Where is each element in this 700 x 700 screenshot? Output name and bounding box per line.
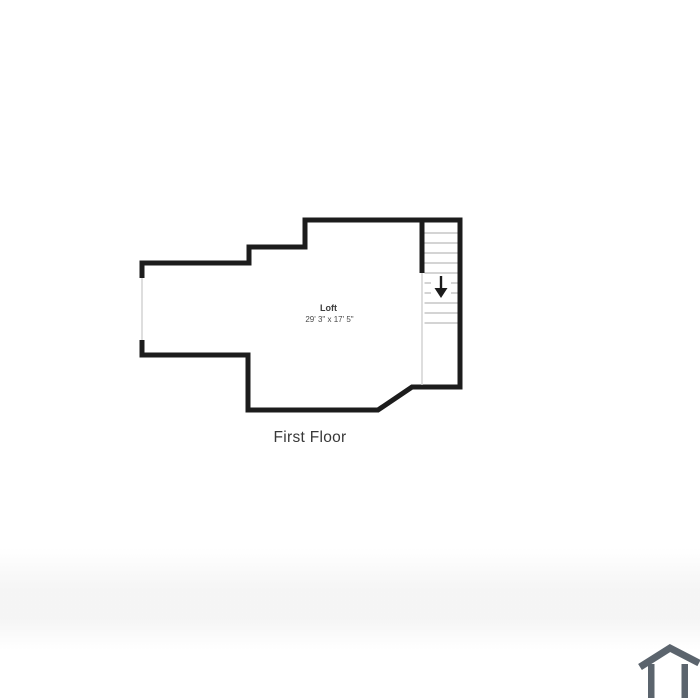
stairs-down-arrow-icon [431, 274, 451, 300]
left-window [138, 278, 147, 340]
house-icon [640, 648, 699, 698]
staircase [422, 218, 458, 385]
floorplan-svg: Loft 29' 3" x 17' 5" First Floor [0, 0, 700, 700]
room-dimensions: 29' 3" x 17' 5" [305, 315, 353, 324]
room-label: Loft [320, 303, 337, 313]
floorplan-outline [142, 220, 460, 410]
floor-label: First Floor [273, 429, 346, 446]
floorplan-image: Loft 29' 3" x 17' 5" First Floor [0, 0, 700, 700]
